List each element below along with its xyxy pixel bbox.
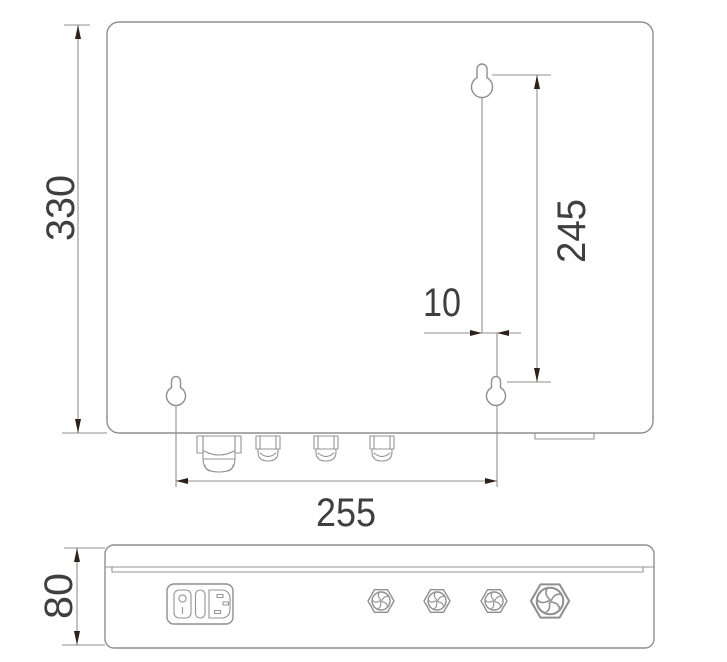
gland-nut-large-icon: [531, 584, 569, 617]
cable-gland-small-1-icon: [256, 436, 280, 461]
cable-gland-large-icon: [197, 436, 241, 472]
iec-power-inlet-icon: [209, 590, 230, 618]
technical-drawing-page: 330 245 10 255: [0, 0, 727, 662]
arrowhead-up: [74, 548, 80, 562]
arrowhead-up: [534, 75, 540, 89]
dimension-80: 80: [37, 548, 105, 645]
keyhole-mount-slot-bottom-left-icon: [167, 377, 186, 406]
dimension-10-label: 10: [423, 281, 461, 325]
arrowhead-down: [74, 631, 80, 645]
gland-nut-small-1-icon: [368, 590, 394, 613]
rear-view: 330 245 10 255: [39, 22, 653, 535]
arrowhead-up: [75, 25, 81, 39]
dimension-10: 10: [423, 98, 521, 336]
cable-gland-small-2-icon: [314, 436, 338, 461]
arrowhead-right: [485, 478, 497, 484]
arrowhead-left: [497, 330, 509, 336]
dimension-330: 330: [39, 25, 107, 433]
gland-nut-small-2-icon: [424, 590, 450, 613]
gland-nut-small-3-icon: [481, 590, 507, 613]
arrowhead-down: [75, 419, 81, 433]
bottom-view: 80: [37, 545, 654, 648]
rocker-power-switch-icon: [174, 590, 191, 618]
dimension-245-label: 245: [550, 199, 594, 263]
arrowhead-down: [534, 368, 540, 382]
keyhole-mount-slot-bottom-right-icon: [487, 377, 506, 406]
dimension-80-label: 80: [37, 573, 81, 619]
dimension-255-label: 255: [316, 491, 376, 535]
dimension-330-label: 330: [39, 175, 83, 241]
technical-drawing: 330 245 10 255: [0, 0, 727, 662]
bottom-edge-tab: [535, 433, 594, 439]
cable-gland-small-3-icon: [370, 436, 394, 461]
arrowhead-right: [470, 330, 482, 336]
keyhole-mount-slot-top-icon: [472, 64, 493, 98]
power-entry-module: [167, 584, 233, 624]
dimension-255: 255: [176, 333, 497, 535]
arrowhead-left: [176, 478, 188, 484]
dimension-245: 245: [492, 75, 594, 382]
enclosure-bottom-outline: [105, 545, 654, 648]
fuse-holder-icon: [196, 590, 206, 618]
